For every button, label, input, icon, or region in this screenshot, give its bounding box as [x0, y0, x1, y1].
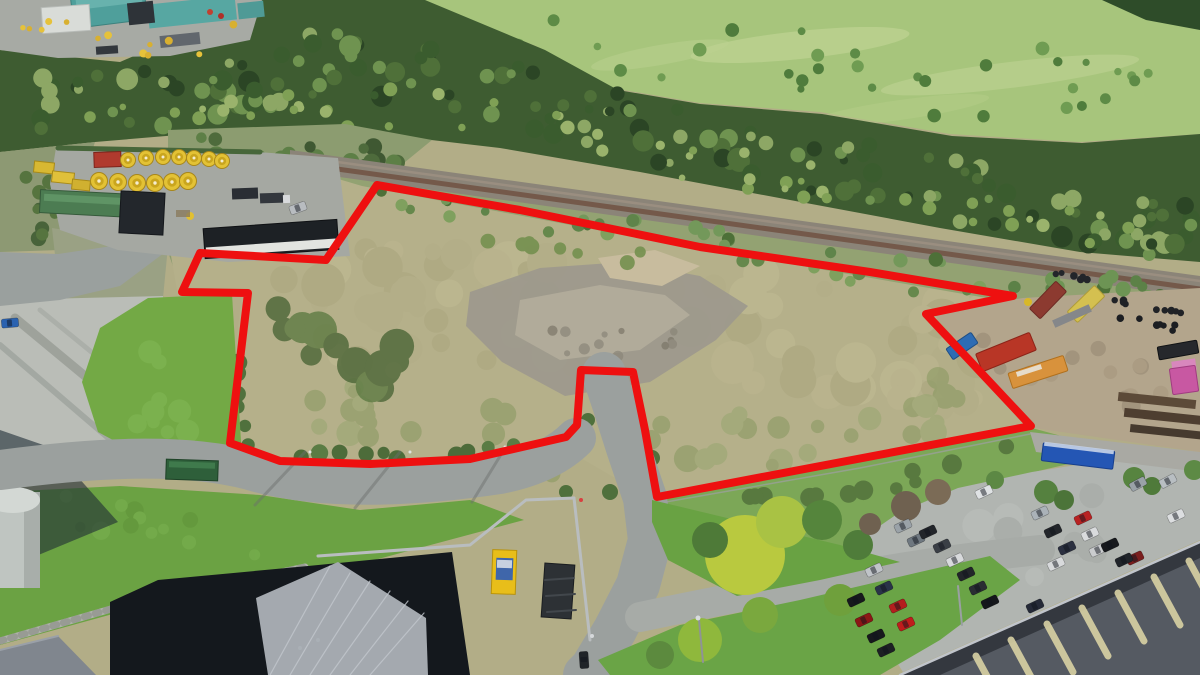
aerial-site-photo — [0, 0, 1200, 675]
field-grass-patches — [811, 420, 824, 433]
forest-canopy — [865, 196, 874, 205]
parked-car — [1, 318, 19, 328]
scrub-top-edge — [635, 246, 646, 257]
hill-bushes — [1061, 102, 1073, 114]
forest-canopy — [790, 147, 805, 162]
yellow-equipment — [104, 31, 112, 39]
drum-hub — [221, 160, 224, 163]
forest-canopy — [842, 141, 854, 153]
container-red-small — [94, 152, 122, 168]
forest-canopy — [584, 90, 597, 103]
forest-canopy — [949, 154, 964, 169]
forest-canopy — [623, 104, 636, 117]
railway-bushes — [825, 247, 836, 258]
field-mottle — [816, 281, 833, 298]
forest-spring-growth — [170, 107, 180, 117]
stub-bushes — [602, 484, 618, 500]
forest-canopy — [444, 90, 455, 101]
forest-canopy — [671, 104, 683, 116]
field-grass-patches — [766, 459, 779, 472]
roof-vents — [316, 638, 320, 642]
lawn-mottle — [115, 499, 128, 512]
hill-bushes — [1036, 42, 1050, 56]
hill-bushes — [927, 109, 941, 123]
scrub-cluster — [284, 318, 305, 339]
forest-spring-growth — [739, 147, 750, 158]
field-grass-patches — [912, 396, 929, 413]
lamp-head — [696, 616, 701, 621]
scrub-cluster — [266, 296, 291, 321]
yellow-cable-drum — [180, 173, 197, 190]
forest-canopy — [158, 77, 169, 88]
forest-canopy — [1051, 226, 1073, 248]
forest-canopy — [293, 55, 305, 67]
forest-canopy — [746, 132, 756, 142]
hill-bushes — [977, 110, 989, 122]
scrub-top-edge — [554, 242, 566, 254]
pallets — [176, 210, 190, 217]
verge-bushes — [908, 286, 919, 297]
field-mottle — [432, 334, 450, 352]
yard-mottle — [1133, 359, 1148, 374]
fence-posts — [309, 451, 312, 454]
tyre-stacks — [1053, 271, 1059, 277]
hill-bushes — [614, 64, 627, 77]
forest-spring-growth — [899, 193, 912, 206]
tyre-stacks — [1120, 299, 1127, 306]
forest-spring-growth — [744, 173, 756, 185]
hill-bushes — [1053, 57, 1062, 66]
drum-hub — [162, 156, 165, 159]
forest-canopy — [370, 91, 378, 99]
gravel-spots — [670, 328, 678, 336]
forest-spring-growth — [599, 149, 606, 156]
factory-building-teal — [237, 1, 265, 20]
forest-canopy — [953, 214, 968, 229]
tyre-stacks — [1070, 272, 1078, 280]
forest-spring-growth — [967, 198, 978, 209]
field-grass-patches — [695, 448, 717, 470]
field-mottle — [441, 239, 473, 271]
forest-canopy — [581, 136, 593, 148]
forest-canopy — [633, 130, 654, 151]
forest-spring-growth — [199, 106, 206, 113]
yellow-equipment — [196, 51, 202, 57]
hill-bushes — [693, 43, 707, 57]
fence-posts — [409, 451, 412, 454]
field-mottle — [435, 280, 463, 308]
field-mottle — [301, 263, 345, 307]
forest-spring-growth — [1122, 222, 1134, 234]
hill-bushes — [1077, 101, 1087, 111]
forest-spring-growth — [246, 111, 255, 120]
hedgerow-south — [378, 447, 390, 459]
yellow-cable-drum — [139, 151, 154, 166]
field-grass-patches — [400, 421, 421, 442]
field-mottle — [711, 341, 754, 384]
car-park-trees — [1143, 477, 1161, 495]
hedgerow-south — [332, 445, 348, 461]
gravel-spots — [602, 331, 608, 337]
field-grass-patches — [858, 407, 881, 430]
forest-spring-growth — [923, 201, 937, 215]
scrub-cluster — [380, 329, 415, 364]
scrub-cluster — [323, 333, 349, 359]
forest-canopy — [972, 173, 983, 184]
railway-bushes — [713, 225, 725, 237]
forest-canopy — [271, 77, 285, 91]
hedgerow-trees — [209, 132, 223, 146]
field-grass-patches — [304, 390, 326, 412]
parked-car — [579, 651, 589, 669]
verge-bushes — [443, 210, 455, 222]
yard-mottle — [1065, 350, 1080, 365]
yellow-equipment — [145, 52, 152, 59]
drum-hub — [186, 179, 189, 182]
forest-canopy — [225, 59, 234, 68]
field-grass-patches — [311, 419, 327, 435]
yellow-cable-drum — [91, 173, 108, 190]
forest-canopy — [263, 95, 279, 111]
gravel-spots — [560, 326, 571, 337]
forest-canopy — [807, 141, 822, 156]
forest-canopy — [982, 179, 996, 193]
lawn-mottle — [146, 527, 158, 539]
field-grass-patches — [799, 444, 817, 462]
yellow-loader — [1024, 298, 1032, 306]
scrub-top-edge — [481, 234, 496, 249]
yard-bushes — [1099, 274, 1114, 289]
lawn-mottle — [182, 512, 198, 528]
field-mottle — [836, 342, 876, 382]
forest-spring-growth — [969, 218, 978, 227]
scrub-top-edge — [516, 237, 530, 251]
forest-canopy — [332, 28, 344, 40]
yellow-equipment — [64, 19, 70, 25]
forest-spring-growth — [320, 106, 332, 118]
forest-spring-growth — [782, 185, 789, 192]
scrub-top-edge — [572, 248, 583, 259]
forest-canopy — [578, 120, 592, 134]
yellow-equipment — [27, 26, 32, 31]
verge-bushes — [942, 454, 962, 474]
forest-canopy — [605, 107, 615, 117]
trees — [802, 500, 842, 540]
hedgerow-west — [239, 420, 251, 432]
hill-bushes — [796, 74, 808, 86]
tyre-stacks — [1153, 306, 1160, 313]
hill-bushes — [980, 59, 992, 71]
forest-spring-growth — [797, 191, 810, 204]
yellow-cable-drum — [121, 153, 136, 168]
forest-canopy — [557, 99, 569, 111]
hill-bushes — [852, 60, 864, 72]
lawn-light — [138, 340, 161, 363]
gravel-spots — [668, 339, 678, 349]
forest-canopy — [41, 83, 58, 100]
hill-bushes — [548, 14, 560, 26]
forest-canopy — [507, 69, 516, 78]
white-post — [590, 634, 594, 638]
forest-canopy — [385, 62, 405, 82]
yellow-cable-drum — [202, 152, 217, 167]
forest-canopy — [108, 107, 119, 118]
verge-bushes — [999, 439, 1015, 455]
forest-canopy — [194, 83, 210, 99]
field-mottle — [888, 326, 917, 355]
lawn-light — [128, 414, 147, 433]
yellow-equipment — [95, 36, 101, 42]
forest-canopy — [1146, 238, 1157, 249]
dark-shed — [119, 191, 165, 235]
forest-canopy — [835, 182, 854, 201]
forest-spring-growth — [806, 160, 816, 170]
forest-canopy — [699, 130, 718, 149]
verge-bushes — [543, 226, 554, 237]
forest-spring-growth — [383, 82, 397, 96]
forest-spring-growth — [290, 106, 299, 115]
forest-canopy — [1147, 212, 1157, 222]
tyre-stacks — [1162, 307, 1169, 314]
forest-canopy — [274, 47, 290, 63]
field-mottle — [270, 266, 298, 294]
forest-canopy — [856, 148, 870, 162]
forest-spring-growth — [1005, 218, 1019, 232]
trees — [756, 496, 808, 548]
lawn-mottle — [249, 549, 260, 560]
lawn-light — [161, 425, 175, 439]
tyre-stacks — [1059, 270, 1065, 276]
gravel-spots — [547, 326, 557, 336]
tyre-stacks — [1136, 315, 1143, 322]
gravel-spots — [594, 339, 604, 349]
yellow-equipment — [147, 42, 152, 47]
car-park-trees — [891, 491, 921, 521]
forest-spring-growth — [552, 111, 561, 120]
yellow-equipment — [39, 27, 45, 33]
yellow-equipment — [165, 37, 173, 45]
drum-hub — [135, 181, 138, 184]
forest-spring-growth — [1036, 219, 1049, 232]
scrub-trees — [20, 171, 33, 184]
yard-mottle — [1091, 341, 1106, 356]
drum-hub — [170, 180, 173, 183]
verge-bushes — [904, 463, 920, 479]
factory-dark-bay — [127, 1, 155, 26]
forest-spring-growth — [1085, 238, 1095, 248]
hill-bushes — [1114, 68, 1121, 75]
lorry — [260, 193, 284, 204]
car-windscreen — [580, 657, 587, 662]
hill-bushes — [798, 27, 806, 35]
lorry — [232, 188, 258, 200]
hill-bushes — [813, 63, 824, 74]
yard-bushes — [1137, 282, 1147, 292]
lorry-cab — [283, 195, 290, 203]
trees — [742, 597, 778, 633]
red-plant — [207, 9, 213, 15]
hill-bushes — [919, 75, 931, 87]
hill-bushes — [1068, 83, 1078, 93]
drum-hub — [145, 157, 148, 160]
yellow-cable-drum — [156, 150, 171, 165]
aerial-photo-canvas — [0, 0, 1200, 675]
scrub-top-edge — [620, 255, 635, 270]
forest-spring-growth — [192, 111, 206, 125]
forest-spring-growth — [490, 98, 499, 107]
forest-canopy — [312, 78, 326, 92]
forest-canopy — [209, 76, 217, 84]
forest-canopy — [138, 65, 151, 78]
forest-canopy — [525, 120, 543, 138]
yellow-equipment — [45, 18, 52, 25]
forest-canopy — [124, 117, 135, 128]
hill-bushes — [594, 43, 602, 51]
barrier-post — [579, 498, 583, 502]
forest-spring-growth — [592, 129, 603, 140]
forest-spring-growth — [458, 124, 465, 131]
trees — [646, 641, 674, 669]
hedgerow-trees — [359, 143, 369, 153]
gravel-spots — [618, 328, 624, 334]
lorry — [96, 45, 119, 55]
field-mottle — [424, 308, 448, 332]
hill-bushes — [811, 49, 824, 62]
yellow-cable-drum — [164, 174, 181, 191]
forest-canopy — [448, 100, 461, 113]
lawn-mottle — [158, 524, 169, 535]
lawn-light — [168, 399, 191, 422]
forest-canopy — [759, 136, 774, 151]
forest-canopy — [988, 217, 1002, 231]
tyre-stacks — [1117, 314, 1125, 322]
tyre-stacks — [1157, 321, 1164, 328]
yellow-cable-drum — [147, 175, 164, 192]
field-grass-patches — [844, 428, 859, 443]
drum-hub — [127, 159, 130, 162]
drum-hub — [153, 181, 156, 184]
hill-bushes — [1100, 93, 1111, 104]
forest-spring-growth — [120, 104, 127, 111]
verge-bushes — [854, 481, 874, 501]
forest-canopy — [246, 82, 263, 99]
forest-canopy — [1156, 209, 1169, 222]
yellow-cable-drum — [172, 150, 187, 165]
forest-canopy — [924, 190, 937, 203]
forest-canopy — [480, 69, 495, 84]
tyre-stacks — [1083, 276, 1090, 283]
forest-canopy — [1148, 199, 1158, 209]
forest-canopy — [650, 154, 667, 171]
trees — [692, 522, 728, 558]
forest-spring-growth — [385, 122, 393, 130]
forest-spring-growth — [1003, 205, 1015, 217]
forest-canopy — [373, 61, 386, 74]
forest-canopy — [72, 77, 83, 88]
tyre-stacks — [1173, 308, 1179, 314]
hill-bushes — [657, 73, 665, 81]
forest-spring-growth — [679, 175, 686, 182]
verge-bushes — [747, 488, 763, 504]
forest-canopy — [1133, 214, 1146, 227]
hill-bushes — [725, 23, 739, 37]
railway-bushes — [893, 253, 907, 267]
lawn-mottle — [182, 535, 196, 549]
hedgerow-trees — [196, 132, 207, 143]
forest-canopy — [985, 195, 993, 203]
forest-canopy — [304, 34, 322, 52]
lot-mottle — [1025, 568, 1044, 587]
forest-canopy — [585, 105, 594, 114]
field-mottle — [424, 243, 441, 260]
forest-spring-growth — [798, 178, 805, 185]
forest-canopy — [997, 184, 1016, 203]
forest-canopy — [530, 101, 541, 112]
field-grass-patches — [494, 403, 517, 426]
hill-bushes — [1144, 69, 1153, 78]
hill-bushes — [1129, 75, 1140, 86]
field-grass-patches — [362, 415, 377, 430]
railway-bushes — [626, 214, 639, 227]
tyre-stacks — [1112, 297, 1118, 303]
forest-canopy — [924, 153, 934, 163]
forest-spring-growth — [1065, 206, 1075, 216]
forest-spring-growth — [1096, 211, 1104, 219]
railway-bushes — [688, 220, 703, 235]
hill-bushes — [850, 48, 860, 58]
gravel-spots — [661, 342, 669, 350]
forest-canopy — [1066, 193, 1074, 201]
scrub-trees — [36, 228, 48, 240]
forest-canopy — [1165, 234, 1185, 254]
drum-hub — [208, 158, 211, 161]
yellow-cable-drum — [187, 151, 202, 166]
field-mottle — [780, 362, 817, 399]
drum-hub — [178, 156, 181, 159]
forest-spring-growth — [1026, 216, 1033, 223]
forest-canopy — [406, 78, 416, 88]
forest-canopy — [1185, 219, 1198, 232]
forest-canopy — [326, 70, 342, 86]
railway-bushes — [929, 252, 943, 266]
forest-spring-growth — [689, 146, 697, 154]
skip-contents-light — [497, 560, 512, 569]
forest-canopy — [308, 90, 316, 98]
lot-mottle — [962, 509, 996, 543]
yellow-machine — [51, 171, 74, 184]
yellow-cable-drum — [129, 175, 146, 192]
forest-canopy — [863, 163, 882, 182]
drum-hub — [116, 180, 119, 183]
hedgerow-trees — [305, 141, 316, 152]
forest-canopy — [237, 60, 247, 70]
car-park-trees — [1054, 490, 1074, 510]
red-plant — [218, 13, 224, 19]
hedgerow-south — [358, 446, 373, 461]
forest-canopy — [526, 66, 540, 80]
container-pink — [1169, 365, 1198, 394]
yellow-cable-drum — [215, 154, 230, 169]
forest-canopy — [961, 167, 970, 176]
gravel-spots — [579, 343, 590, 354]
forest-spring-growth — [822, 193, 832, 203]
drum-hub — [193, 157, 196, 160]
forest-canopy — [673, 130, 687, 144]
forest-canopy — [116, 68, 138, 90]
forest-canopy — [483, 106, 500, 123]
forest-spring-growth — [656, 141, 665, 150]
drum-hub — [97, 179, 100, 182]
